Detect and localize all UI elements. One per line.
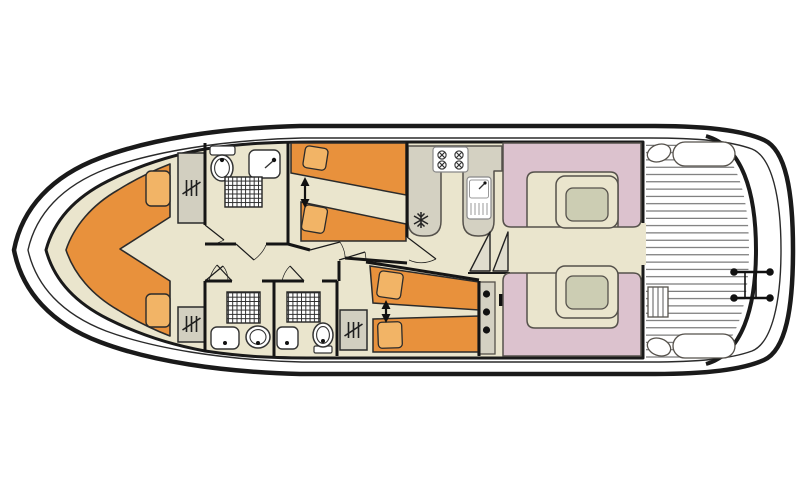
aft-door-opening — [640, 223, 646, 265]
pillow — [378, 322, 403, 349]
toilet-icon — [313, 323, 333, 353]
deck-bench-top — [645, 141, 735, 166]
washbasin-icon — [249, 150, 280, 178]
toilet-icon — [246, 326, 270, 348]
toilet-icon — [210, 146, 235, 181]
pillow — [302, 145, 328, 170]
wardrobe — [178, 307, 205, 342]
dinette-table — [556, 266, 618, 318]
cooker-icon — [433, 147, 468, 172]
shower-icon — [287, 292, 320, 322]
shower-icon — [227, 292, 260, 323]
pillow — [301, 204, 328, 234]
wardrobe — [178, 153, 205, 223]
pillow — [146, 294, 170, 327]
pillow — [146, 171, 170, 206]
dinette-table — [556, 176, 618, 228]
washbasin-icon — [211, 327, 239, 349]
shower-icon — [225, 177, 262, 207]
boat-floorplan: Houseboat interior deck plan, top view — [0, 0, 800, 500]
deck-bench-bottom — [645, 334, 735, 359]
deck-planking — [646, 141, 749, 359]
pillow — [376, 270, 403, 299]
deck-side-locker — [648, 287, 668, 317]
washbasin-icon — [277, 327, 298, 349]
wardrobe — [340, 310, 367, 350]
floorplan-svg: Houseboat interior deck plan, top view — [0, 0, 800, 500]
sink-icon — [467, 177, 491, 219]
